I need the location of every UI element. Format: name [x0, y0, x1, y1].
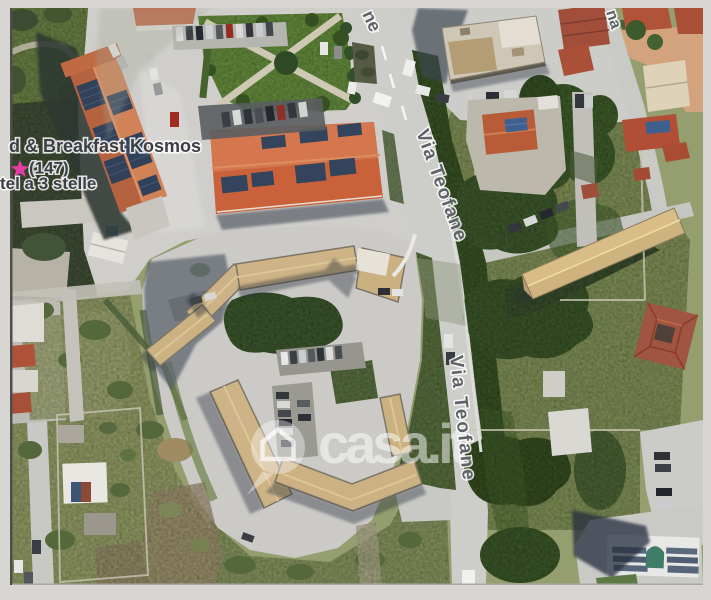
svg-text:tel a 3 stelle: tel a 3 stelle: [0, 174, 96, 193]
svg-text:casa.it: casa.it: [318, 412, 468, 475]
svg-text:d & Breakfast Kosmos: d & Breakfast Kosmos: [9, 136, 201, 156]
